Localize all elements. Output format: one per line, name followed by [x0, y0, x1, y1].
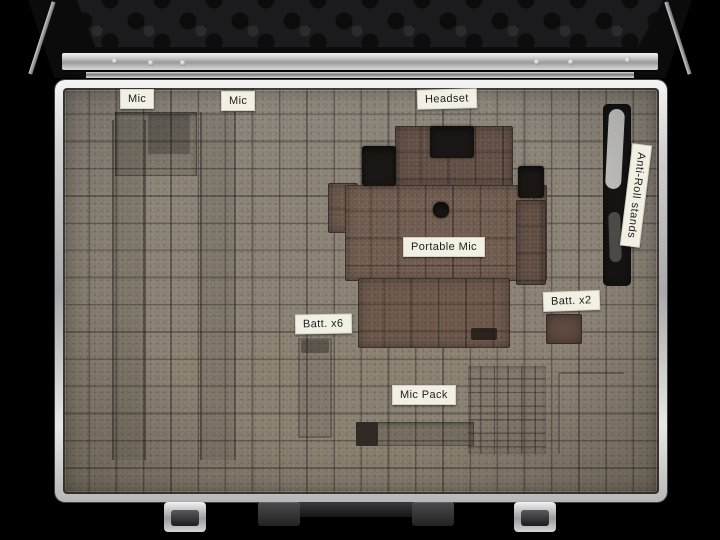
cavity-mic-pack-item — [356, 422, 378, 446]
screw-icon — [568, 59, 574, 65]
flight-case-photo: Mic Mic Headset Portable Mic Batt. x6 Ba… — [0, 0, 720, 540]
cavity-portable-mic-right — [516, 200, 546, 285]
screw-icon — [625, 57, 631, 63]
screw-icon — [180, 60, 186, 66]
pick-pluck-foam: Mic Mic Headset Portable Mic Batt. x6 Ba… — [63, 88, 659, 494]
channel-mic-1 — [112, 120, 146, 460]
cavity-batt-x2 — [546, 314, 582, 344]
latch-right-clasp — [521, 510, 549, 526]
handle-bar — [296, 502, 416, 517]
case-lid — [0, 0, 720, 80]
channel-mic-2 — [200, 112, 236, 460]
screw-icon — [534, 59, 540, 65]
label-mic-2: Mic — [221, 91, 255, 111]
lid-eggcrate-foam — [58, 0, 682, 47]
cavity-batt-x6 — [298, 338, 332, 438]
lid-aluminum-rail — [62, 53, 658, 70]
cavity-batt-x6-notch — [301, 340, 329, 353]
anti-roll-stand-item — [605, 109, 625, 190]
latch-left — [164, 502, 206, 532]
label-mic-1: Mic — [120, 89, 154, 109]
label-batt-x6: Batt. x6 — [295, 314, 352, 335]
label-portable-mic: Portable Mic — [403, 237, 485, 257]
pocket-deep-1 — [362, 146, 396, 186]
pocket-finger-hole — [433, 202, 449, 218]
screw-icon — [148, 60, 154, 66]
screw-icon — [112, 58, 118, 64]
cavity-bottom-right — [558, 372, 624, 454]
latch-right — [514, 502, 556, 532]
pocket-deep-2 — [430, 126, 474, 158]
handle-bracket-left — [258, 502, 300, 526]
latch-left-clasp — [171, 510, 199, 526]
case-base: Mic Mic Headset Portable Mic Batt. x6 Ba… — [55, 80, 667, 502]
hinge-rail — [86, 72, 634, 78]
pocket-seam — [471, 328, 497, 340]
label-batt-x2: Batt. x2 — [543, 290, 600, 312]
fine-grid-area — [468, 366, 546, 454]
label-mic-pack: Mic Pack — [392, 385, 456, 405]
label-headset: Headset — [417, 88, 477, 110]
pocket-deep-3 — [518, 166, 544, 198]
cavity-mic-left-deep — [148, 114, 190, 154]
handle-bracket-right — [412, 502, 454, 526]
